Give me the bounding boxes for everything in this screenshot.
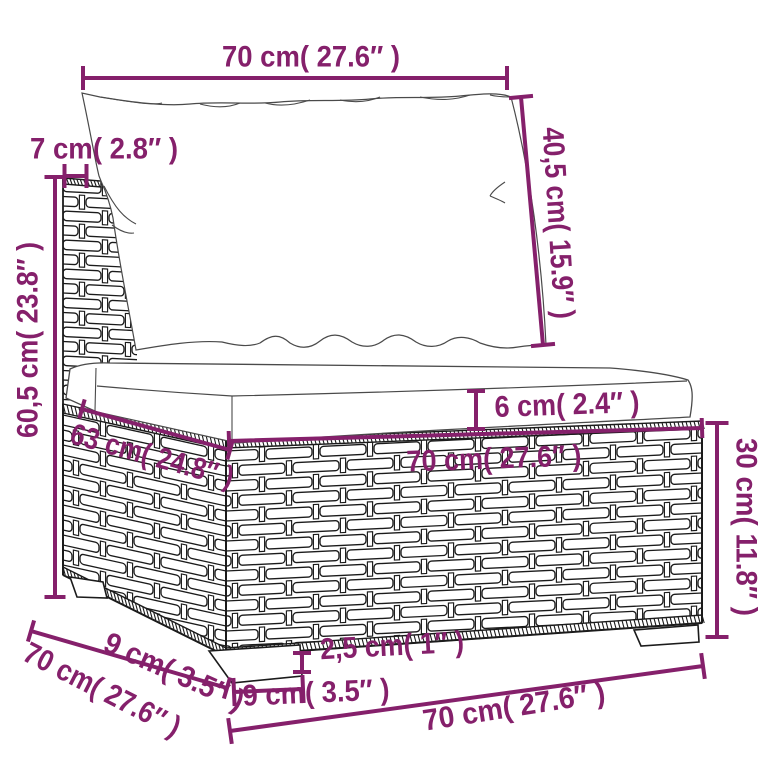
svg-text:70 cm( 27.6″ ): 70 cm( 27.6″ ) — [222, 41, 400, 74]
svg-text:7 cm( 2.8″ ): 7 cm( 2.8″ ) — [30, 133, 178, 166]
svg-text:60,5 cm( 23.8″ ): 60,5 cm( 23.8″ ) — [12, 242, 45, 438]
svg-text:70 cm( 27.6″ ): 70 cm( 27.6″ ) — [406, 439, 582, 478]
svg-text:30 cm( 11.8″ ): 30 cm( 11.8″ ) — [730, 438, 763, 616]
svg-text:9 cm( 3.5″ ): 9 cm( 3.5″ ) — [242, 673, 390, 712]
svg-text:6 cm( 2.4″ ): 6 cm( 2.4″ ) — [494, 386, 640, 424]
